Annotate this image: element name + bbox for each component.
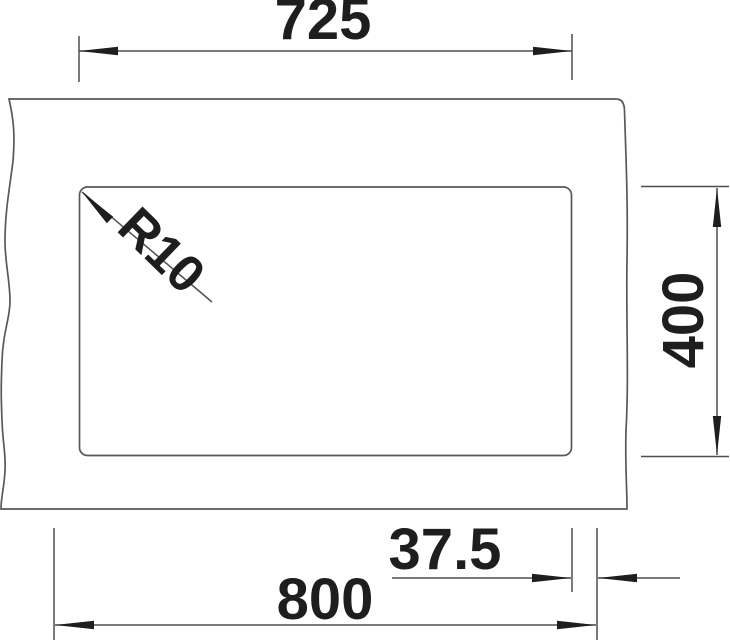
arrowhead-right-icon: [532, 574, 571, 582]
arrowhead-right-icon: [557, 621, 596, 629]
dim-label-width: 725: [275, 0, 372, 49]
worktop-outline: [1, 99, 627, 509]
arrowhead-down-icon: [713, 416, 721, 455]
arrowhead-up-icon: [713, 188, 721, 227]
arrowhead-corner-icon: [82, 192, 113, 223]
drawing-lines: [0, 0, 730, 640]
arrowhead-left-icon: [55, 621, 94, 629]
arrowhead-left-icon: [598, 574, 637, 582]
dim-label-side-offset: 37.5: [389, 521, 502, 579]
arrowhead-right-icon: [533, 47, 572, 55]
arrowhead-left-icon: [79, 47, 118, 55]
technical-drawing: 725 400 37.5 800 R10: [0, 0, 730, 640]
dim-label-cabinet-width: 800: [277, 571, 374, 629]
dim-label-depth: 400: [655, 272, 713, 369]
